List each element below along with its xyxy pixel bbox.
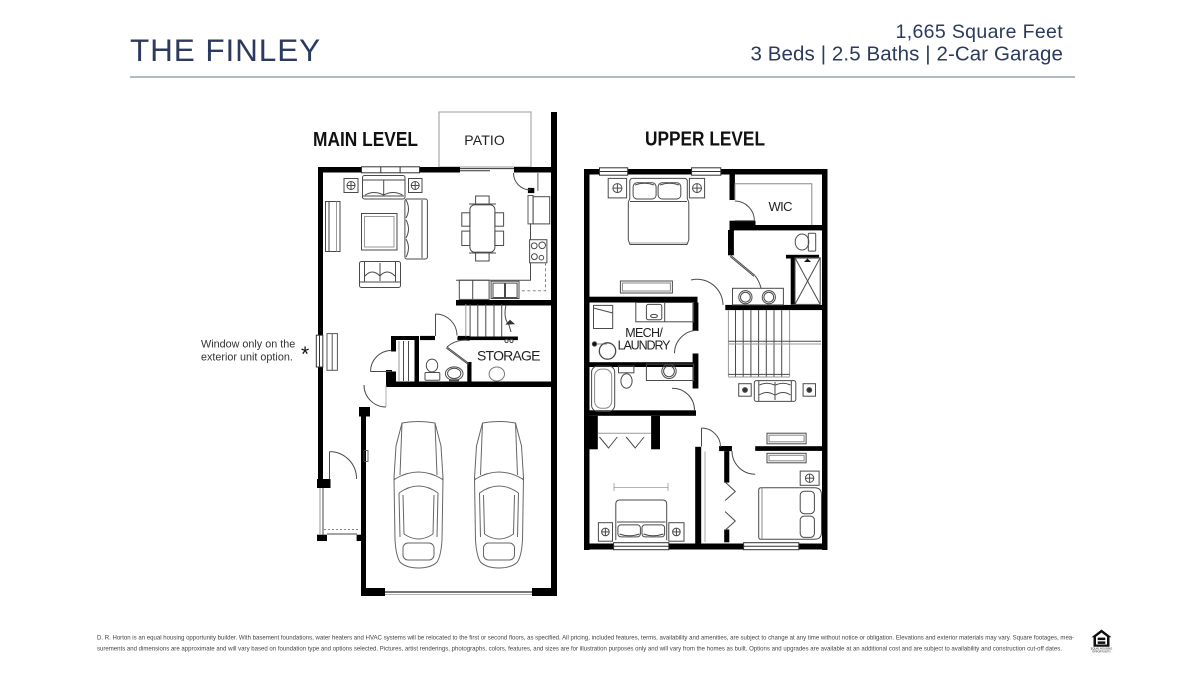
svg-text:surements and dimensions are a: surements and dimensions are approximate…	[97, 647, 1062, 653]
svg-text:1,665 Square Feet: 1,665 Square Feet	[896, 21, 1064, 43]
svg-text:UPPER LEVEL: UPPER LEVEL	[645, 128, 765, 151]
svg-text:WIC: WIC	[769, 199, 793, 214]
svg-text:3 Beds | 2.5 Baths | 2-Car Gar: 3 Beds | 2.5 Baths | 2-Car Garage	[750, 43, 1063, 66]
svg-text:OPPORTUNITY: OPPORTUNITY	[1092, 649, 1111, 653]
svg-text:MAIN LEVEL: MAIN LEVEL	[313, 128, 418, 151]
svg-text:D. R. Horton is an equal housi: D. R. Horton is an equal housing opportu…	[97, 636, 1074, 642]
svg-text:THE FINLEY: THE FINLEY	[130, 32, 321, 68]
svg-text:exterior unit option.: exterior unit option.	[201, 352, 293, 364]
svg-text:*: *	[301, 343, 309, 366]
svg-text:Window only on the: Window only on the	[201, 339, 295, 351]
svg-text:PATIO: PATIO	[464, 132, 505, 148]
svg-text:STORAGE: STORAGE	[477, 348, 541, 364]
svg-text:LAUNDRY: LAUNDRY	[618, 339, 672, 353]
